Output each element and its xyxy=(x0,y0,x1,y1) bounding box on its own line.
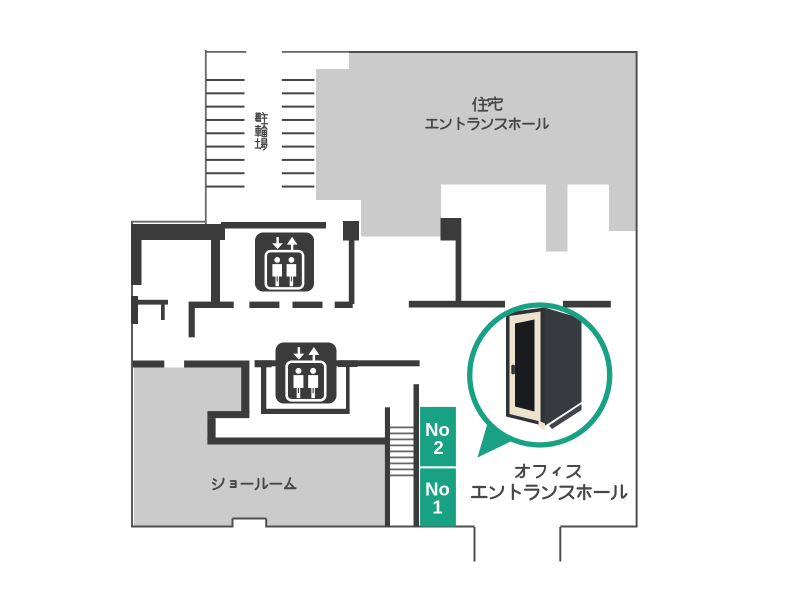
svg-text:1: 1 xyxy=(432,497,442,518)
svg-text:2: 2 xyxy=(433,437,443,458)
